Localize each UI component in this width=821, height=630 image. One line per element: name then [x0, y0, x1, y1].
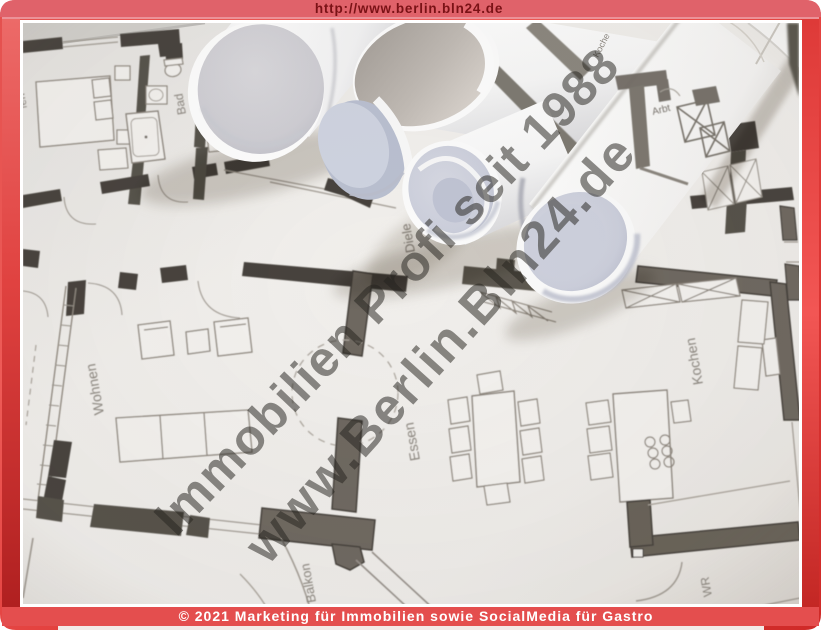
svg-text:© 2021 Marketing für Immobilie: © 2021 Marketing für Immobilien sowie So… — [179, 608, 654, 624]
svg-text:http://www.berlin.bln24.de: http://www.berlin.bln24.de — [315, 1, 503, 16]
